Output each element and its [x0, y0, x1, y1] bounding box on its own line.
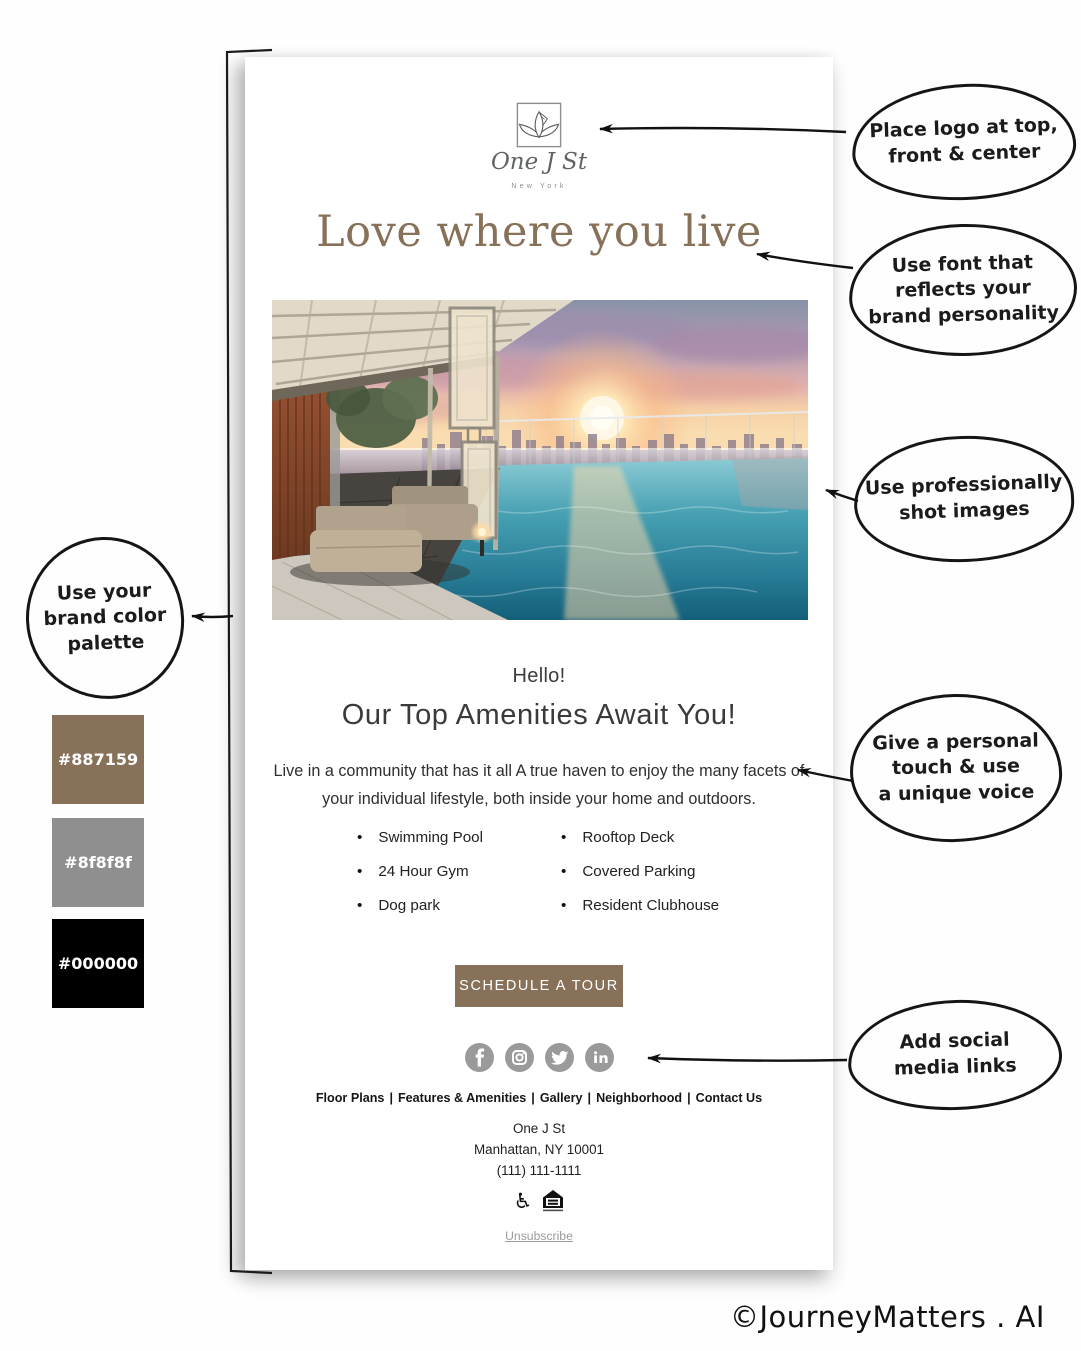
nav-link-floor-plans[interactable]: Floor Plans	[316, 1091, 385, 1105]
amenities-right-column: Rooftop Deck Covered Parking Resident Cl…	[561, 829, 751, 931]
wheelchair-icon: ♿	[514, 1191, 533, 1212]
twitter-icon[interactable]	[545, 1043, 574, 1072]
palette-swatch-brown: #887159	[52, 715, 144, 804]
amenities-left-column: Swimming Pool 24 Hour Gym Dog park	[357, 829, 517, 931]
infographic-canvas: One J St New York Love where you live	[0, 0, 1081, 1351]
body-line-2: your individual lifestyle, both inside y…	[245, 785, 833, 813]
amenities-list: Swimming Pool 24 Hour Gym Dog park Rooft…	[357, 829, 757, 931]
amenity-item: Rooftop Deck	[561, 829, 751, 846]
callout-personal-touch: Give a personal touch & use a unique voi…	[849, 692, 1064, 844]
unsubscribe-row: Unsubscribe	[245, 1229, 833, 1243]
watermark-credit: ©JourneyMatters . AI	[730, 1300, 1045, 1334]
nav-separator: |	[687, 1091, 691, 1105]
callout-brand-palette: Use your brand color palette	[23, 534, 187, 701]
callout-place-logo: Place logo at top, front & center	[850, 80, 1078, 204]
arrow-to-palette	[192, 616, 233, 617]
hero-pool-image	[272, 300, 808, 620]
greeting-text: Hello!	[245, 665, 833, 688]
body-line-1: Live in a community that has it all A tr…	[245, 757, 833, 785]
callout-line: front & center	[870, 139, 1059, 171]
callout-social-links: Add social media links	[847, 997, 1064, 1113]
unsubscribe-link[interactable]: Unsubscribe	[505, 1229, 573, 1243]
email-template: One J St New York Love where you live	[245, 57, 833, 1270]
address-name: One J St	[245, 1119, 833, 1140]
accessibility-icons: ♿	[245, 1189, 833, 1213]
callout-line: media links	[894, 1053, 1017, 1082]
address-city: Manhattan, NY 10001	[245, 1140, 833, 1161]
lotus-logo-icon	[516, 102, 562, 148]
swatch-hex-label: #000000	[58, 954, 138, 973]
amenity-item: Covered Parking	[561, 863, 751, 880]
palette-swatch-gray: #8f8f8f	[52, 818, 144, 907]
schedule-tour-button[interactable]: SCHEDULE A TOUR	[455, 965, 623, 1007]
footer-nav: Floor Plans|Features & Amenities|Gallery…	[245, 1091, 833, 1105]
nav-link-contact-us[interactable]: Contact Us	[696, 1091, 762, 1105]
callout-line: Give a personal	[872, 728, 1039, 757]
callout-line: brand personality	[868, 300, 1059, 331]
nav-separator: |	[389, 1091, 393, 1105]
callout-line: palette	[44, 629, 168, 659]
amenities-heading: Our Top Amenities Await You!	[245, 699, 833, 732]
email-headline: Love where you live	[245, 207, 833, 257]
callout-line: a unique voice	[873, 779, 1040, 808]
amenity-item: Resident Clubhouse	[561, 897, 751, 914]
callout-brand-font: Use font that reflects your brand person…	[847, 221, 1078, 359]
nav-separator: |	[588, 1091, 592, 1105]
social-links	[245, 1043, 833, 1072]
nav-separator: |	[531, 1091, 535, 1105]
swatch-hex-label: #8f8f8f	[64, 853, 132, 872]
instagram-icon[interactable]	[505, 1043, 534, 1072]
callout-line: touch & use	[873, 754, 1040, 783]
callout-professional-images: Use professionally shot images	[852, 432, 1076, 566]
amenity-item: Swimming Pool	[357, 829, 517, 846]
swatch-hex-label: #887159	[58, 750, 138, 769]
address-block: One J St Manhattan, NY 10001 (111) 111-1…	[245, 1119, 833, 1181]
nav-link-neighborhood[interactable]: Neighborhood	[596, 1091, 682, 1105]
facebook-icon[interactable]	[465, 1043, 494, 1072]
equal-housing-icon	[542, 1189, 564, 1213]
amenity-item: 24 Hour Gym	[357, 863, 517, 880]
linkedin-icon[interactable]	[585, 1043, 614, 1072]
callout-line: Add social	[893, 1028, 1016, 1057]
palette-swatch-black: #000000	[52, 919, 144, 1008]
amenity-item: Dog park	[357, 897, 517, 914]
nav-link-features-amenities[interactable]: Features & Amenities	[398, 1091, 526, 1105]
address-phone: (111) 111-1111	[245, 1161, 833, 1182]
body-paragraph: Live in a community that has it all A tr…	[245, 757, 833, 814]
logo-name: One J St	[245, 149, 833, 175]
callout-line: brand color	[43, 603, 167, 633]
nav-link-gallery[interactable]: Gallery	[540, 1091, 583, 1105]
logo-tagline: New York	[245, 183, 833, 190]
